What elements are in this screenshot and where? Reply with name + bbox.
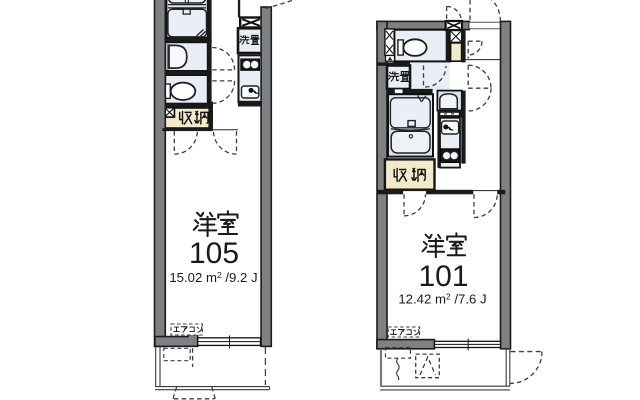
svg-text:12.42 m2 /7.6 J: 12.42 m2 /7.6 J xyxy=(398,291,486,306)
svg-text:101: 101 xyxy=(418,260,468,293)
svg-text:15.02 m2 /9.2 J: 15.02 m2 /9.2 J xyxy=(169,270,257,285)
svg-text:105: 105 xyxy=(189,237,239,270)
